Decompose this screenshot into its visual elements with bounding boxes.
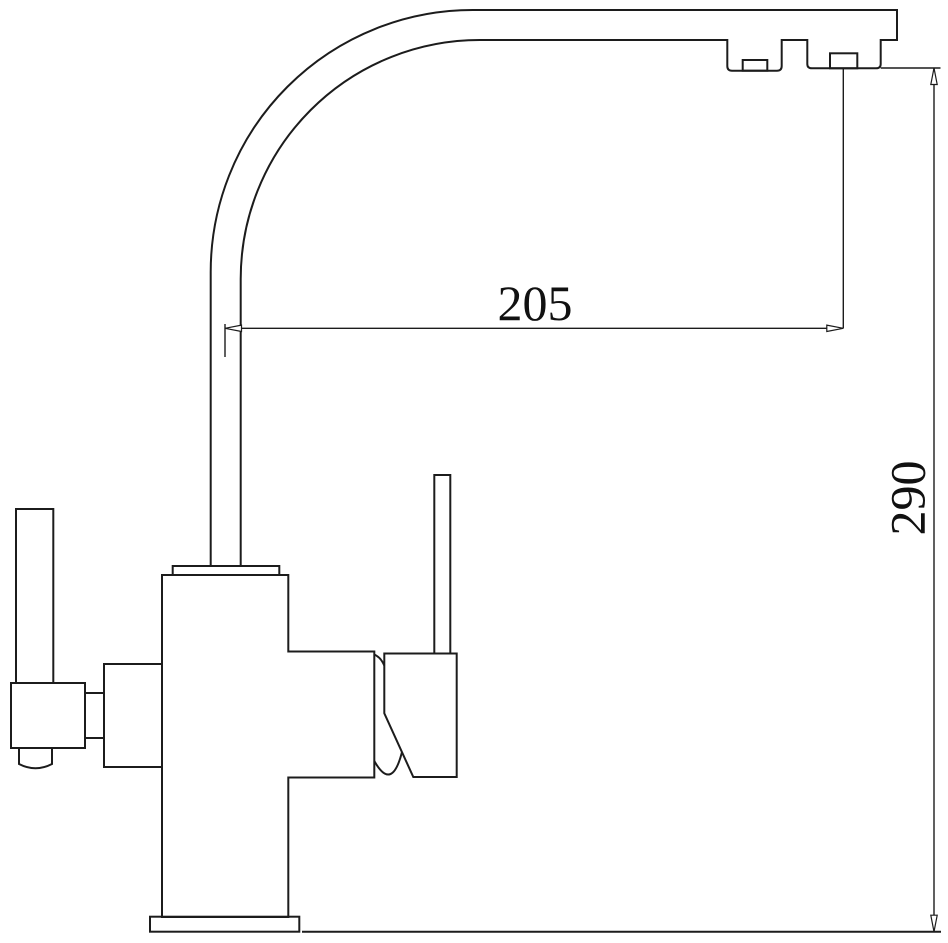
dim-vertical-arrow-bottom xyxy=(931,915,937,932)
faucet-technical-drawing: 205 290 xyxy=(0,0,948,943)
dim-horizontal-label: 205 xyxy=(498,275,573,331)
body-outline xyxy=(162,575,374,917)
dim-vertical-arrow-top xyxy=(931,68,937,85)
aerator-inset-left xyxy=(743,60,768,71)
faucet-outline-group xyxy=(11,10,941,932)
drawing-canvas: 205 290 xyxy=(0,0,948,943)
left-handle-block xyxy=(11,683,85,748)
mounting-flange xyxy=(173,566,280,575)
dim-horizontal-arrow-left xyxy=(225,325,242,331)
base-plate xyxy=(150,917,299,932)
dim-horizontal-arrow-right xyxy=(827,325,844,331)
right-handle-joint-arc-bottom xyxy=(374,752,402,775)
left-handle-lever xyxy=(16,509,53,683)
dim-vertical-label: 290 xyxy=(880,461,936,536)
left-valve-block xyxy=(104,664,162,767)
dimension-group: 205 290 xyxy=(225,68,941,932)
left-handle-connector xyxy=(85,693,104,738)
right-handle-base xyxy=(384,654,456,778)
right-handle-rod xyxy=(434,475,450,654)
aerator-inset-right xyxy=(830,53,857,68)
left-handle-cap xyxy=(19,748,52,768)
right-handle-joint-arc-top xyxy=(374,655,384,666)
